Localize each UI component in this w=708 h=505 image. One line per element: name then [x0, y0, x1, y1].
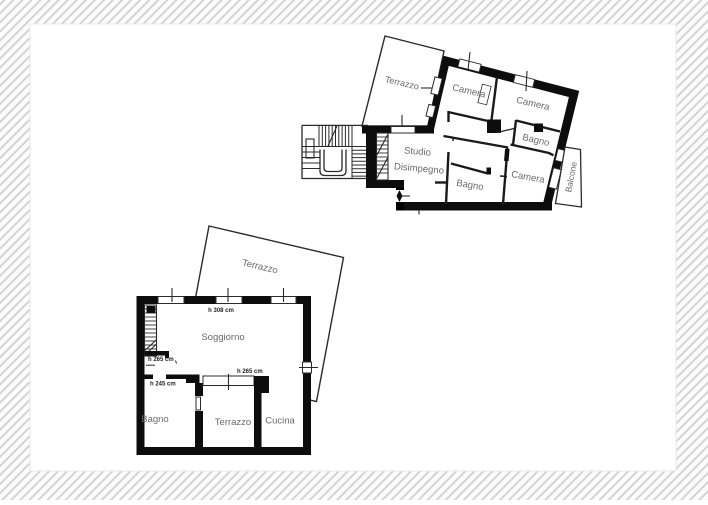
svg-text:h 308 cm: h 308 cm: [208, 308, 234, 314]
svg-text:h 265 cm: h 265 cm: [237, 369, 263, 375]
svg-text:h 265 cm: h 265 cm: [148, 357, 174, 363]
svg-text:Terrazzo: Terrazzo: [215, 417, 251, 428]
svg-text:Studio: Studio: [404, 145, 432, 158]
svg-text:Cucina: Cucina: [265, 416, 295, 427]
svg-text:Soggiorno: Soggiorno: [201, 332, 244, 343]
svg-text:h 245 cm: h 245 cm: [150, 382, 176, 388]
svg-text:Bagno: Bagno: [141, 414, 168, 425]
